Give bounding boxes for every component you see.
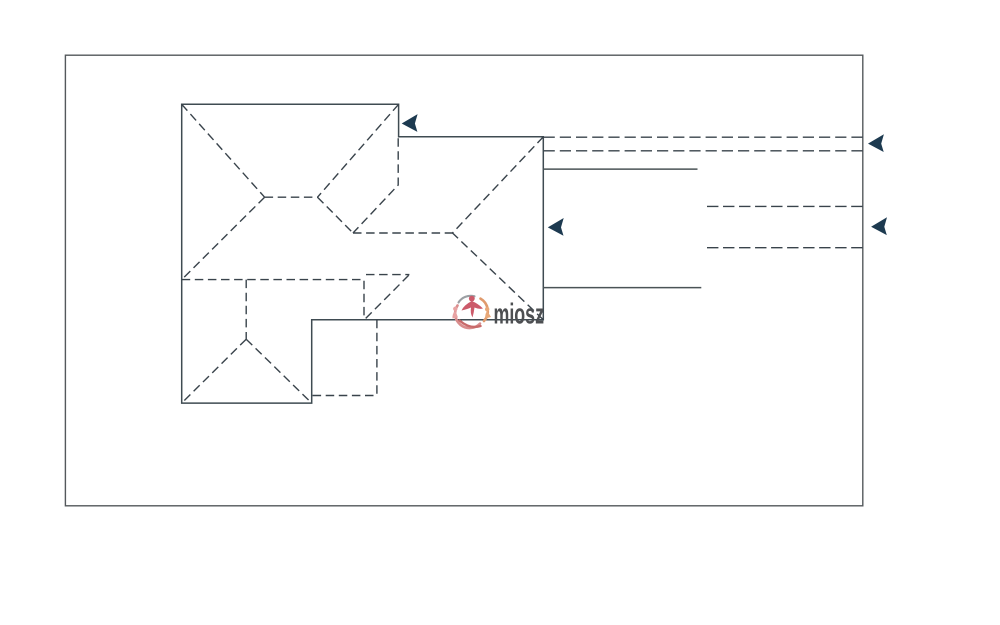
svg-text:miosz: miosz: [494, 299, 545, 331]
